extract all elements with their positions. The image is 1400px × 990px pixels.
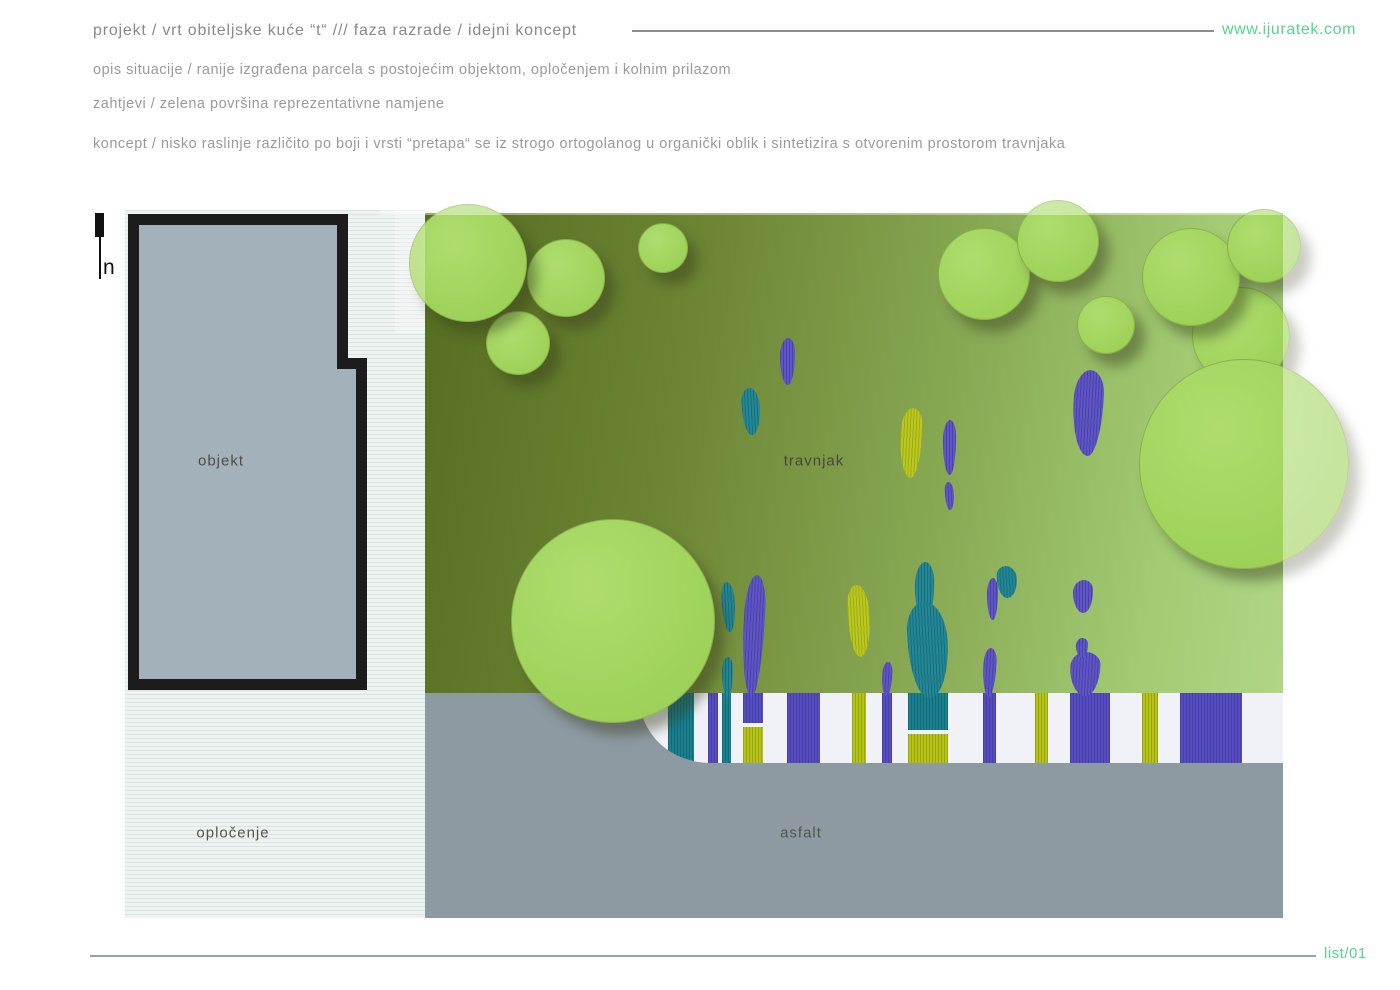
description-line-situation: opis situacije / ranije izgrađena parcel… — [93, 62, 731, 78]
planting-stripe-band — [640, 693, 1283, 763]
band-stripe-purple — [983, 693, 996, 763]
north-label: n — [103, 256, 115, 280]
overflow-fade-top — [380, 168, 1400, 215]
description-line-concept: koncept / nisko raslinje različito po bo… — [93, 136, 1065, 152]
band-stripe-teal — [908, 693, 948, 730]
band-stripe-purple — [708, 693, 718, 763]
paving-label: opločenje — [196, 825, 269, 842]
band-stripe-purple — [882, 693, 892, 763]
website-link[interactable]: www.ijuratek.com — [1222, 21, 1356, 39]
band-stripe-purple — [1180, 693, 1242, 763]
band-stripe-purple — [743, 693, 763, 723]
building-label: objekt — [198, 453, 244, 470]
description-line-requirements: zahtjevi / zelena površina reprezentativ… — [93, 96, 444, 112]
building-footprint — [125, 210, 375, 700]
band-stripe-purple — [787, 693, 820, 763]
concept-sheet: { "header": { "title": "projekt / vrt ob… — [0, 0, 1400, 990]
band-stripe-purple — [1070, 693, 1110, 763]
band-stripe-teal — [668, 693, 694, 763]
lawn-zone — [425, 213, 1283, 693]
north-arrow-head — [95, 213, 104, 237]
band-stripe-teal — [722, 693, 731, 763]
north-arrow: n — [94, 212, 128, 284]
overflow-fade-right — [1283, 168, 1400, 918]
sheet-title: projekt / vrt obiteljske kuće “t“ /// fa… — [93, 22, 577, 40]
title-rule-line — [632, 30, 1214, 32]
band-stripe-yellow — [1142, 693, 1158, 763]
sheet-number: list/01 — [1324, 945, 1367, 962]
band-stripe-yellow — [743, 727, 763, 763]
band-stripe-yellow — [852, 693, 866, 763]
footer-rule-line — [90, 955, 1316, 957]
overflow-fade-left — [395, 168, 425, 333]
band-stripe-yellow — [1035, 693, 1048, 763]
lawn-label: travnjak — [784, 453, 845, 470]
asphalt-label: asfalt — [780, 825, 822, 842]
band-stripe-yellow — [908, 734, 948, 763]
site-plan: objekt travnjak opločenje asfalt — [125, 210, 1283, 918]
